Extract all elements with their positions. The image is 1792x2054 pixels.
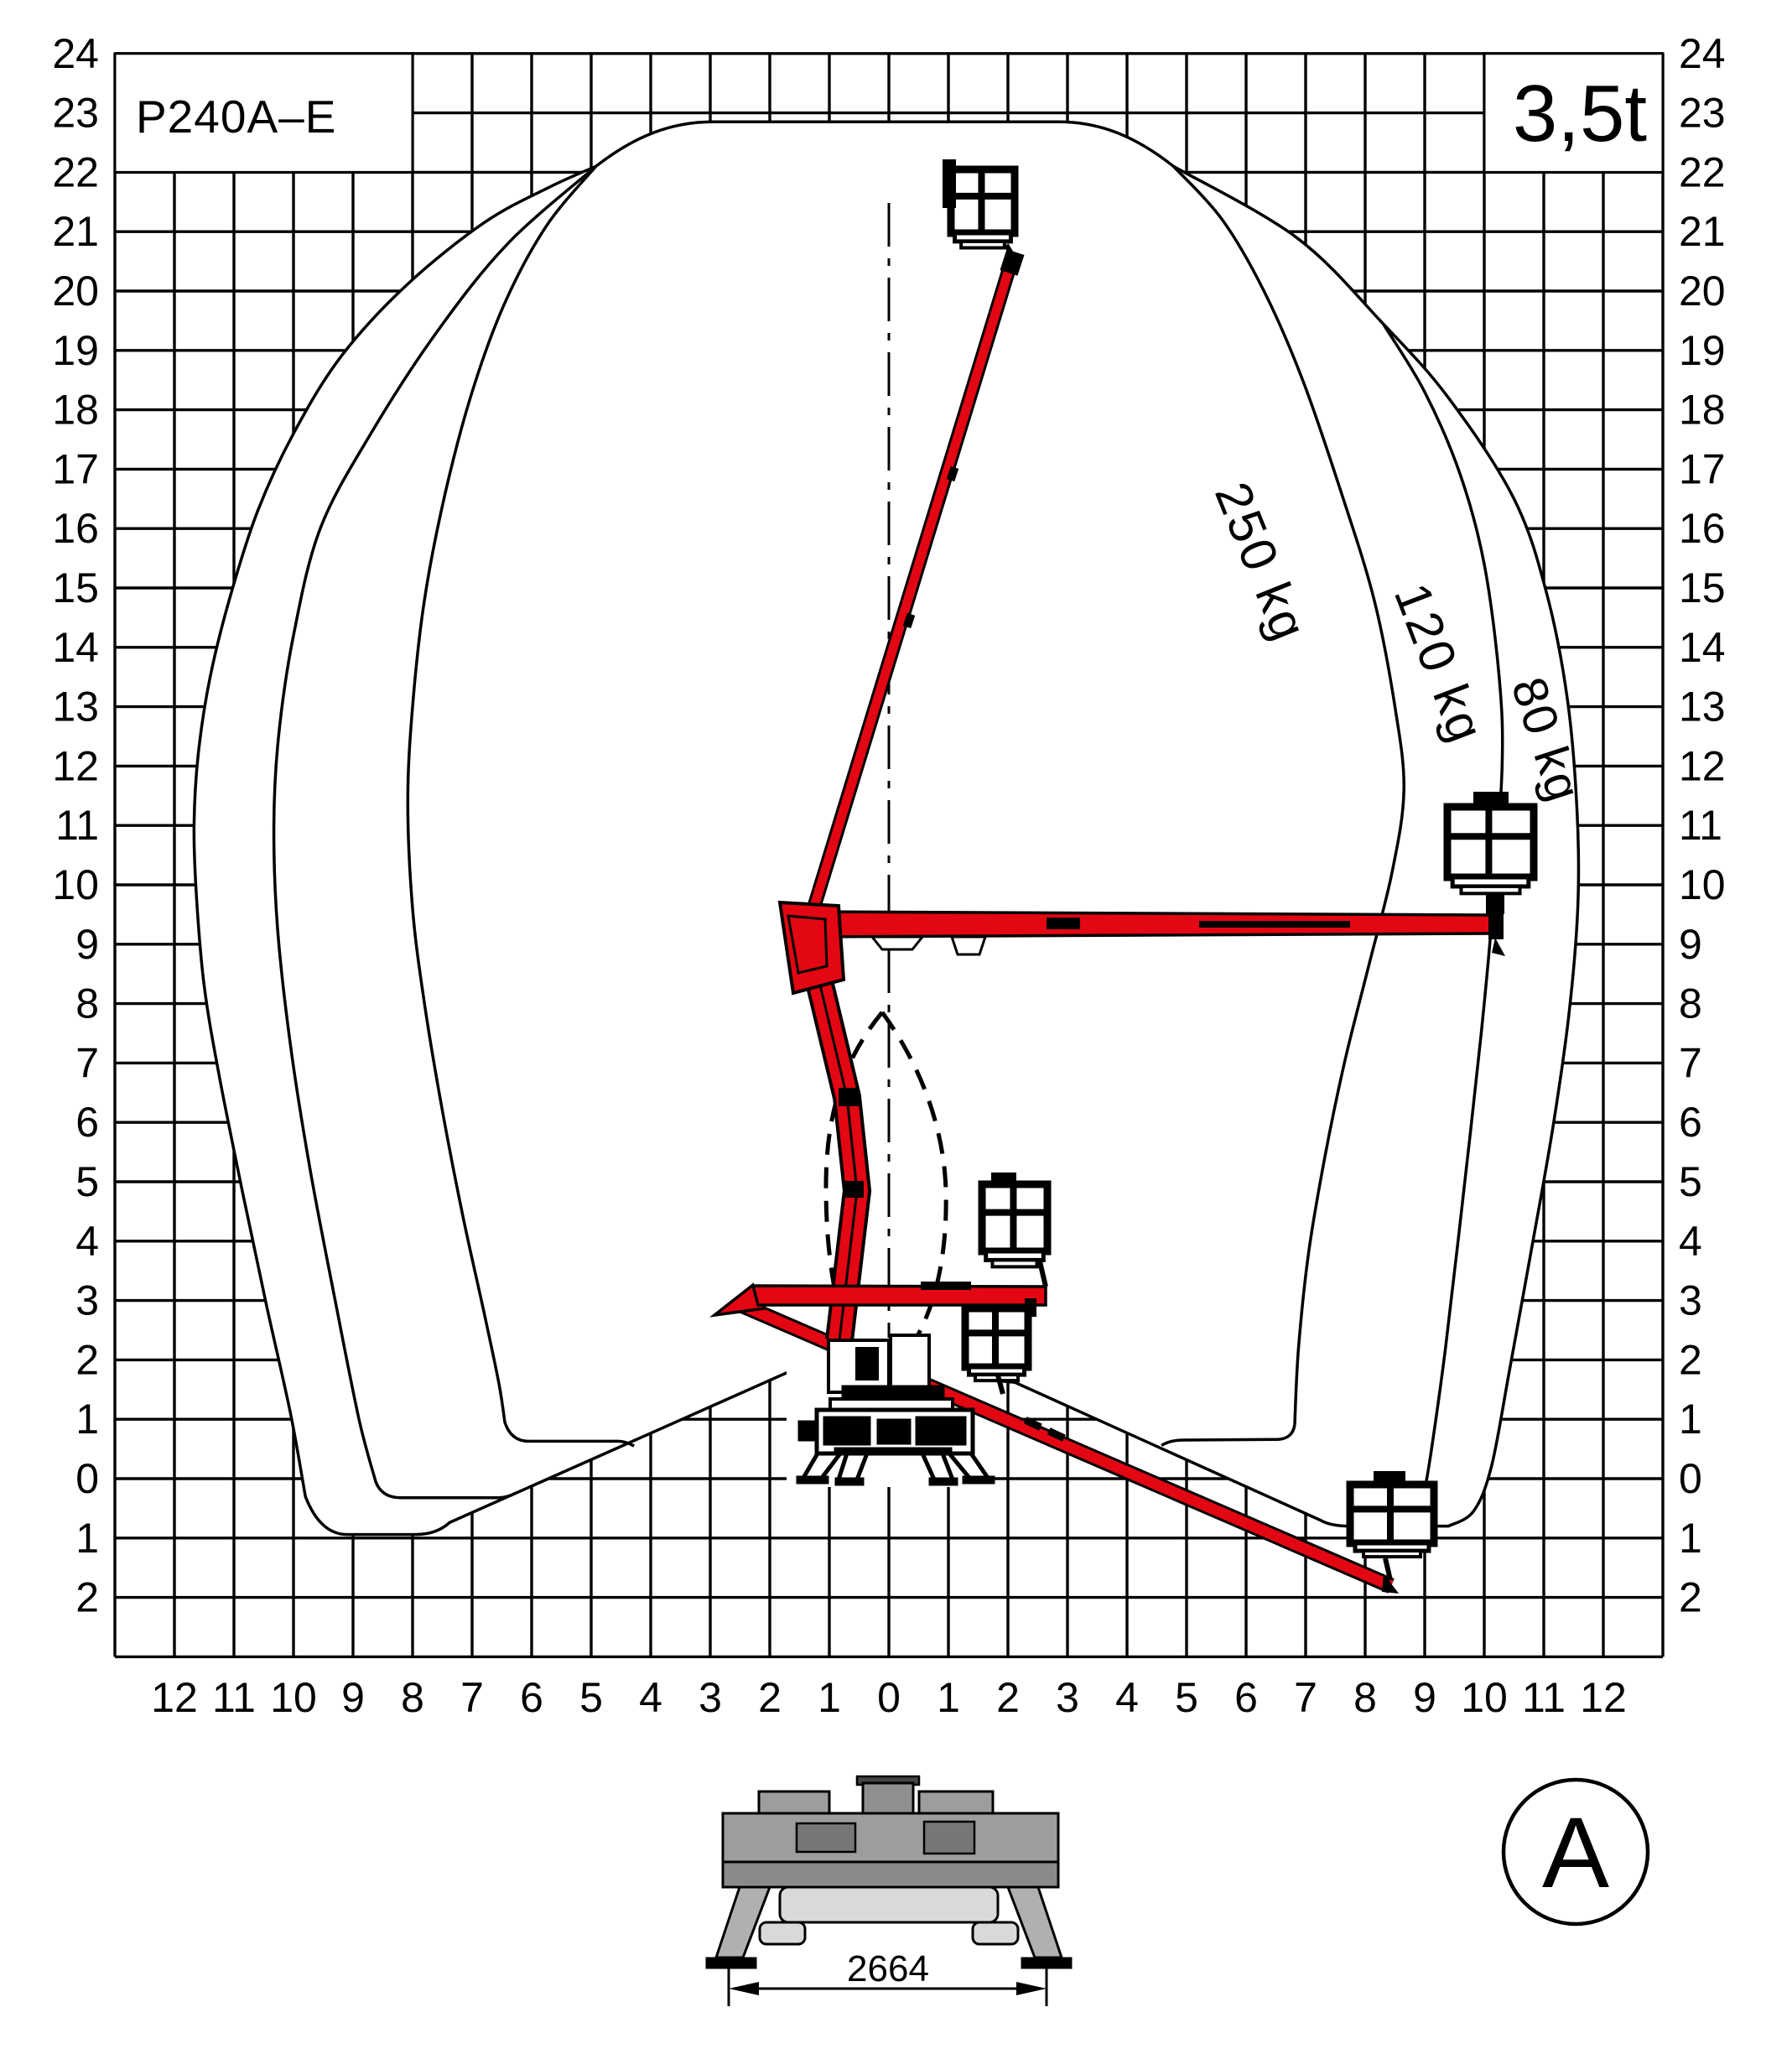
svg-text:7: 7 (1294, 1674, 1317, 1721)
svg-text:22: 22 (52, 148, 99, 195)
svg-text:7: 7 (75, 1039, 99, 1086)
svg-text:17: 17 (52, 445, 99, 492)
svg-text:15: 15 (52, 564, 99, 611)
svg-text:13: 13 (1679, 684, 1726, 731)
svg-text:3: 3 (75, 1277, 99, 1324)
svg-text:10: 10 (1461, 1674, 1508, 1721)
svg-text:1: 1 (1679, 1396, 1702, 1443)
svg-text:15: 15 (1679, 564, 1726, 611)
svg-text:10: 10 (52, 861, 99, 908)
svg-text:6: 6 (75, 1099, 99, 1146)
svg-text:23: 23 (1679, 90, 1726, 137)
svg-text:0: 0 (1679, 1455, 1702, 1502)
svg-text:7: 7 (460, 1674, 484, 1721)
svg-text:21: 21 (52, 208, 99, 255)
svg-text:4: 4 (639, 1674, 662, 1721)
svg-text:16: 16 (1679, 505, 1726, 552)
svg-text:21: 21 (1679, 208, 1726, 255)
svg-text:11: 11 (1522, 1674, 1566, 1721)
svg-text:2: 2 (1679, 1574, 1702, 1621)
svg-text:P240A–E: P240A–E (136, 91, 336, 143)
svg-text:1: 1 (75, 1515, 99, 1562)
svg-text:14: 14 (52, 624, 99, 671)
svg-text:5: 5 (1679, 1158, 1702, 1205)
svg-text:5: 5 (1175, 1674, 1198, 1721)
svg-text:16: 16 (52, 505, 99, 552)
svg-text:24: 24 (52, 30, 99, 77)
svg-text:8: 8 (1353, 1674, 1377, 1721)
svg-text:6: 6 (1679, 1099, 1702, 1146)
svg-text:7: 7 (1679, 1039, 1702, 1086)
svg-text:13: 13 (52, 684, 99, 731)
svg-text:3: 3 (699, 1674, 722, 1721)
svg-text:11: 11 (212, 1674, 256, 1721)
svg-text:6: 6 (520, 1674, 543, 1721)
svg-text:20: 20 (52, 268, 99, 315)
svg-text:2664: 2664 (847, 1948, 929, 1989)
svg-text:2: 2 (996, 1674, 1020, 1721)
svg-text:8: 8 (1679, 980, 1702, 1027)
svg-text:1: 1 (818, 1674, 841, 1721)
svg-text:5: 5 (75, 1158, 99, 1205)
svg-text:12: 12 (1580, 1674, 1627, 1721)
svg-text:4: 4 (75, 1218, 99, 1265)
svg-text:5: 5 (579, 1674, 603, 1721)
svg-text:2: 2 (75, 1574, 99, 1621)
svg-text:10: 10 (1679, 861, 1726, 908)
svg-text:18: 18 (1679, 387, 1726, 434)
svg-text:22: 22 (1679, 148, 1726, 195)
svg-text:3,5t: 3,5t (1513, 69, 1647, 159)
svg-text:12: 12 (1679, 742, 1726, 789)
svg-text:11: 11 (1679, 802, 1722, 849)
svg-text:9: 9 (1413, 1674, 1436, 1721)
svg-text:9: 9 (1679, 921, 1702, 968)
svg-text:10: 10 (270, 1674, 317, 1721)
svg-text:19: 19 (52, 327, 99, 374)
svg-text:11: 11 (55, 802, 99, 849)
svg-text:0: 0 (877, 1674, 901, 1721)
svg-text:24: 24 (1679, 30, 1726, 77)
svg-text:14: 14 (1679, 624, 1726, 671)
svg-text:1: 1 (937, 1674, 960, 1721)
svg-text:1: 1 (1679, 1515, 1702, 1562)
svg-text:12: 12 (52, 742, 99, 789)
svg-text:2: 2 (758, 1674, 782, 1721)
svg-text:2: 2 (1679, 1336, 1702, 1383)
svg-text:23: 23 (52, 90, 99, 137)
svg-text:3: 3 (1679, 1277, 1702, 1324)
svg-text:19: 19 (1679, 327, 1726, 374)
svg-text:8: 8 (75, 980, 99, 1027)
svg-text:9: 9 (75, 921, 99, 968)
svg-text:9: 9 (341, 1674, 365, 1721)
svg-text:8: 8 (401, 1674, 424, 1721)
svg-text:A: A (1542, 1797, 1609, 1909)
svg-text:20: 20 (1679, 268, 1726, 315)
svg-text:1: 1 (75, 1396, 99, 1443)
svg-text:2: 2 (75, 1336, 99, 1383)
svg-text:0: 0 (75, 1455, 99, 1502)
svg-text:3: 3 (1056, 1674, 1079, 1721)
svg-text:4: 4 (1115, 1674, 1139, 1721)
svg-text:12: 12 (151, 1674, 198, 1721)
svg-text:6: 6 (1234, 1674, 1258, 1721)
svg-text:4: 4 (1679, 1218, 1702, 1265)
svg-text:17: 17 (1679, 445, 1726, 492)
svg-text:18: 18 (52, 387, 99, 434)
